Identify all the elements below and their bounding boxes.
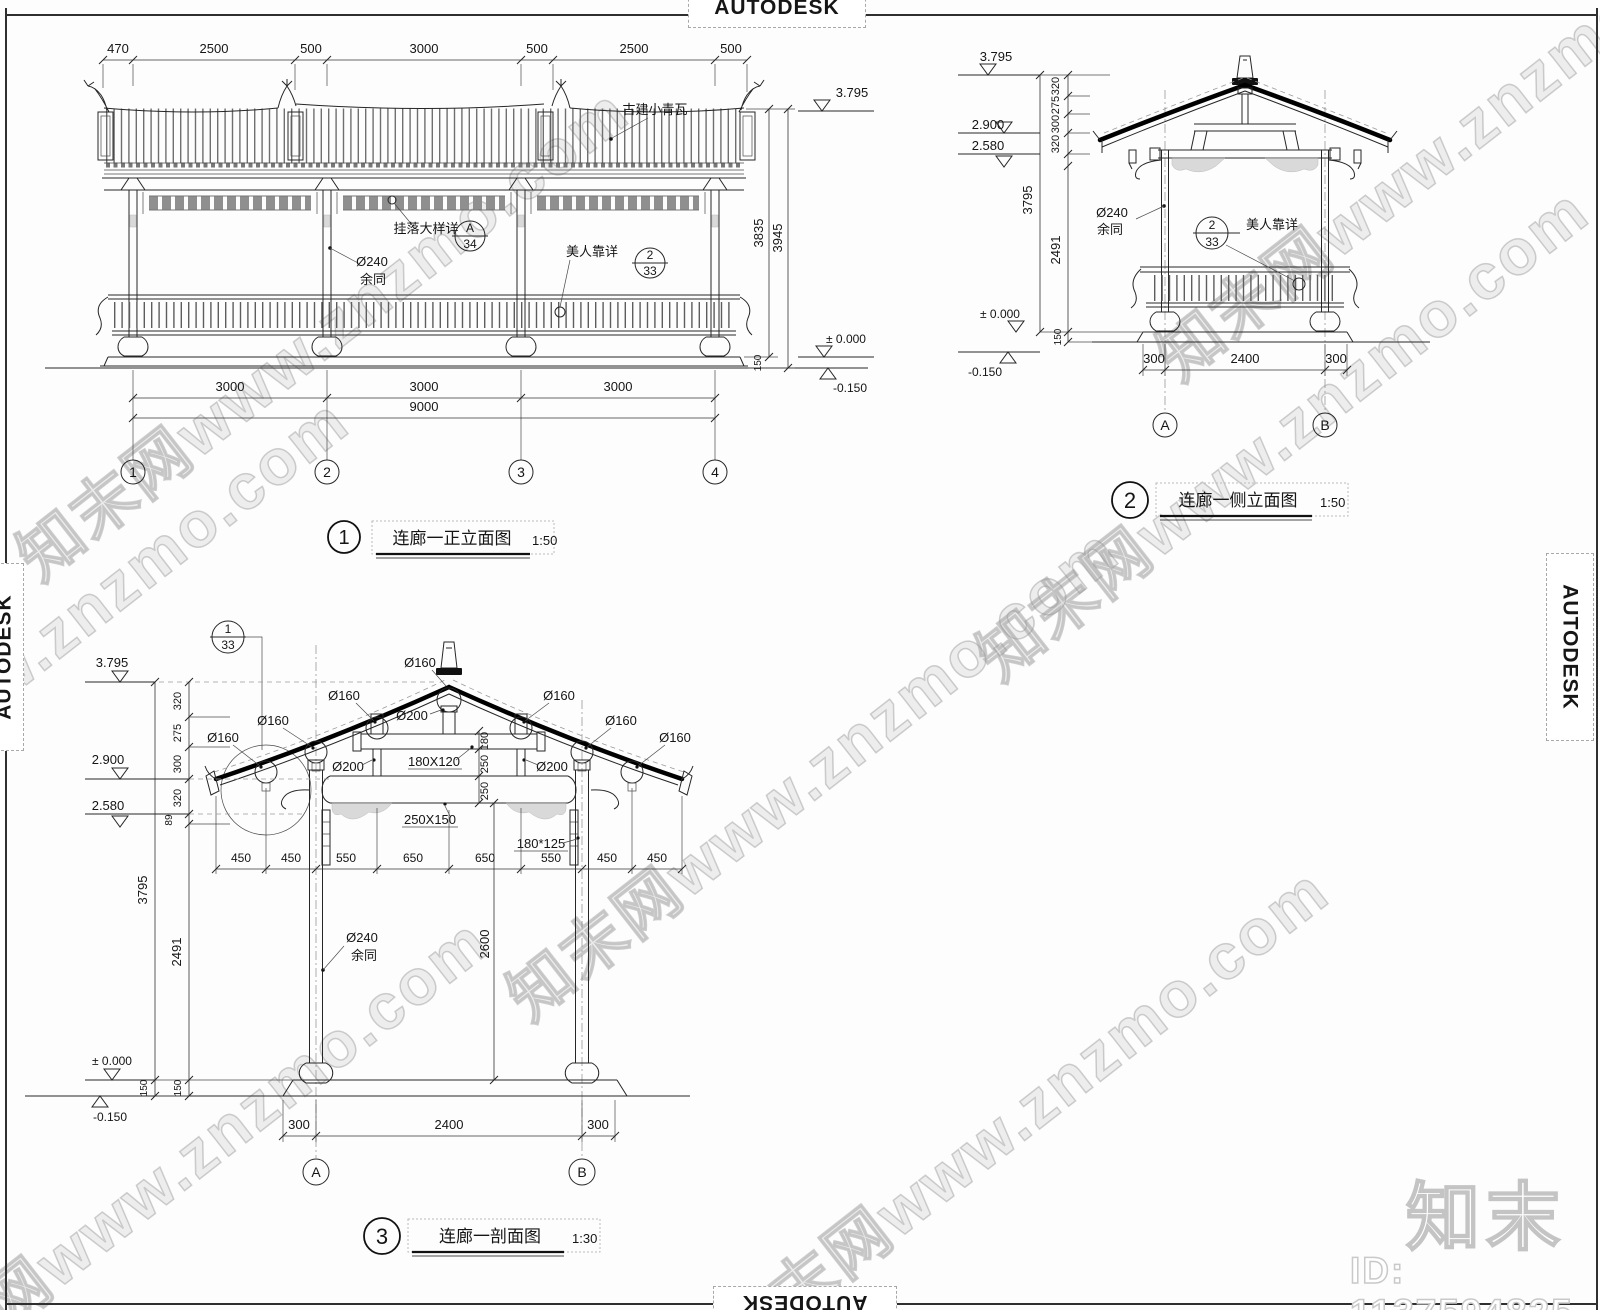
dim-text: 2500 <box>620 41 649 56</box>
dim-text: 2400 <box>1231 351 1260 366</box>
section-title: 3 连廊一剖面图 1:30 <box>364 1218 600 1256</box>
beam-lower-label: 250X150 <box>404 812 456 827</box>
autodesk-stamp-top: AUTODESK <box>688 0 866 28</box>
detail-ref-top: 2 <box>1209 218 1216 232</box>
elevation-text: -0.150 <box>93 1110 127 1124</box>
detail-ref-top: A <box>466 221 474 235</box>
dim-text: 300 <box>587 1117 609 1132</box>
post-label: Ø200 <box>332 759 364 774</box>
dim-text: 2400 <box>435 1117 464 1132</box>
dim-text: 3000 <box>410 41 439 56</box>
section-frame <box>281 706 618 865</box>
column-dia-label: Ø240 <box>356 254 388 269</box>
level-mark: 2.580 <box>958 138 1040 167</box>
front-columns <box>129 190 719 337</box>
dim-text: 450 <box>647 851 667 865</box>
dim-text: 3795 <box>135 876 150 905</box>
roof-end-panel <box>98 112 755 160</box>
side-bases-plinth <box>1092 312 1430 342</box>
dim-text: 250 <box>479 782 491 800</box>
side-elevation-view: 320 275 300 320 3795 2491 150 3.795 2.90… <box>958 49 1430 520</box>
dim-text: 3945 <box>770 224 785 253</box>
level-mark: 2.900 <box>958 117 1040 133</box>
detail-ref-bottom: 33 <box>643 264 657 278</box>
column-dia-label: Ø240 <box>346 930 378 945</box>
front-railing <box>96 295 752 335</box>
railing-label: 美人靠详 <box>566 244 618 259</box>
level-mark: -0.150 <box>92 1096 127 1124</box>
level-mark-minus: -0.150 <box>820 368 867 395</box>
autodesk-stamp-bottom: AUTODESK <box>713 1286 897 1310</box>
dim-text: 150 <box>1053 328 1064 345</box>
gualuo-label: 挂落大样详 <box>393 221 458 236</box>
dim-text: 2600 <box>477 930 492 959</box>
front-roof <box>84 79 764 178</box>
dim-text: 650 <box>403 851 423 865</box>
dim-text: 150 <box>753 354 764 371</box>
grid-bubble-label: 4 <box>711 464 719 480</box>
dim-text: 300 <box>172 755 184 773</box>
dim-text: 320 <box>1050 135 1062 153</box>
view-scale: 1:50 <box>532 533 557 548</box>
elevation-text: ± 0.000 <box>92 1054 132 1068</box>
dim-text: 450 <box>231 851 251 865</box>
znzmo-logo: 知末 <box>1406 1158 1566 1265</box>
view-title: 连廊一侧立面图 <box>1179 491 1298 510</box>
front-right-dims: 3835 3945 150 3.795 ± 0.000 -0.150 <box>744 85 874 395</box>
dim-text: 650 <box>475 851 495 865</box>
dim-text: 550 <box>541 851 561 865</box>
front-eave-beam <box>104 178 744 190</box>
sheet-border-right <box>1596 8 1598 1310</box>
dim-text: 300 <box>1325 351 1347 366</box>
dim-text: 300 <box>288 1117 310 1132</box>
dim-text: 3000 <box>410 379 439 394</box>
section-view: 1 33 <box>25 621 693 1256</box>
autodesk-stamp-label: AUTODESK <box>742 1290 867 1310</box>
view-title: 连廊一剖面图 <box>439 1227 541 1246</box>
elevation-text: ± 0.000 <box>980 307 1020 321</box>
image-id-text: ID: 1137594825 <box>1350 1250 1600 1310</box>
autodesk-stamp-left: AUTODESK <box>0 563 24 751</box>
post-label: Ø200 <box>396 708 428 723</box>
grid-bubble-label: A <box>1160 417 1170 433</box>
front-elevation-view: 470 2500 500 3000 500 2500 500 <box>45 41 874 558</box>
dim-text: 320 <box>172 692 184 710</box>
drawing-canvas: 470 2500 500 3000 500 2500 500 <box>0 0 1600 1310</box>
dim-text: 3000 <box>604 379 633 394</box>
side-bottom-dims: 300 2400 300 A B <box>1139 344 1351 437</box>
beam-upper-label: 180X120 <box>408 754 460 769</box>
column-dia-label: Ø240 <box>1096 205 1128 220</box>
railing-label: 美人靠详 <box>1246 217 1298 232</box>
dim-text: 89 <box>164 814 175 826</box>
view-title: 连廊一正立面图 <box>393 529 512 548</box>
grid-bubble-label: 2 <box>323 464 331 480</box>
section-width-dims: 450 450 550 650 650 550 450 450 <box>212 788 686 874</box>
elevation-text: -0.150 <box>968 365 1002 379</box>
dim-text: 3795 <box>1020 186 1035 215</box>
purlin-label: Ø160 <box>605 713 637 728</box>
roof-tile-label: 古建小青瓦 <box>622 102 687 117</box>
level-mark: ± 0.000 <box>85 1054 155 1080</box>
dim-text: 500 <box>300 41 322 56</box>
elevation-text: 2.900 <box>972 117 1005 132</box>
elevation-text: 2.580 <box>972 138 1005 153</box>
section-right-stacks: 180 250 250 2600 <box>475 727 498 1084</box>
dim-text: 2491 <box>169 938 184 967</box>
side-title: 2 连廊一侧立面图 1:50 <box>1112 482 1348 520</box>
side-roof <box>1093 56 1397 160</box>
front-bottom-dims: 3000 3000 3000 9000 1 2 3 4 <box>121 370 727 484</box>
dim-text: 300 <box>1143 351 1165 366</box>
dim-text: 9000 <box>410 399 439 414</box>
dim-text: 450 <box>281 851 301 865</box>
dim-text: 500 <box>720 41 742 56</box>
dim-text: 2491 <box>1048 236 1063 265</box>
view-number: 3 <box>376 1224 388 1249</box>
purlin-label: Ø160 <box>328 688 360 703</box>
elevation-text: 3.795 <box>96 655 129 670</box>
elevation-text: -0.150 <box>833 381 867 395</box>
grid-bubble-label: B <box>577 1164 586 1180</box>
front-title: 1 连廊一正立面图 1:50 <box>328 521 557 558</box>
cad-sheet: 知末网www.znzmo.com 知末网www.znzmo.com 知末网www… <box>0 0 1600 1310</box>
dim-text: 450 <box>597 851 617 865</box>
side-eave-brackets <box>1129 150 1361 179</box>
dim-text: 3835 <box>751 219 766 248</box>
front-bases-platform <box>45 337 868 368</box>
level-mark: 3.795 <box>958 49 1040 75</box>
dim-text: 550 <box>336 851 356 865</box>
level-mark-3795: 3.795 <box>798 85 874 111</box>
elevation-text: ± 0.000 <box>826 332 866 346</box>
autodesk-stamp-label: AUTODESK <box>0 594 17 719</box>
elevation-text: 3.795 <box>836 85 869 100</box>
elevation-text: 3.795 <box>980 49 1013 64</box>
detail-ref-top: 2 <box>647 248 654 262</box>
view-scale: 1:50 <box>1320 495 1345 510</box>
column-note-label: 余同 <box>351 948 377 963</box>
detail-ref-top: 1 <box>225 622 232 636</box>
dim-text: 320 <box>1050 77 1062 95</box>
dim-text: 300 <box>1050 115 1062 133</box>
front-top-dim-chain: 470 2500 500 3000 500 2500 500 <box>99 41 751 92</box>
elevation-text: 2.900 <box>92 752 125 767</box>
grid-bubble-label: 1 <box>129 464 137 480</box>
detail-ref-bottom: 34 <box>463 237 477 251</box>
view-scale: 1:30 <box>572 1231 597 1246</box>
dim-text: 180 <box>479 732 491 750</box>
column-note-label: 余同 <box>1097 222 1123 237</box>
autodesk-stamp-right: AUTODESK <box>1546 553 1594 741</box>
dim-text: 150 <box>173 1079 184 1096</box>
grid-bubble-label: 3 <box>517 464 525 480</box>
batten-label: 180*125 <box>517 836 565 851</box>
level-mark: 3.795 <box>85 655 155 682</box>
dim-text: 2500 <box>200 41 229 56</box>
detail-ref-bottom: 33 <box>1205 235 1219 249</box>
dim-text: 250 <box>479 755 491 773</box>
purlin-label: Ø160 <box>404 655 436 670</box>
purlin-label: Ø160 <box>207 730 239 745</box>
elevation-text: 2.580 <box>92 798 125 813</box>
dim-text: 150 <box>139 1079 150 1096</box>
dim-text: 500 <box>526 41 548 56</box>
level-mark-zero: ± 0.000 <box>798 332 874 357</box>
column-note-label: 余同 <box>360 272 386 287</box>
dim-text: 3000 <box>216 379 245 394</box>
front-lattice-frieze <box>143 192 705 214</box>
grid-bubble-label: B <box>1320 417 1329 433</box>
dim-text: 275 <box>1050 96 1062 114</box>
section-detail-bubble: 1 33 <box>210 621 311 835</box>
purlin-label: Ø160 <box>257 713 289 728</box>
view-number: 2 <box>1124 488 1136 513</box>
autodesk-stamp-label: AUTODESK <box>1558 584 1582 709</box>
dim-text: 275 <box>172 724 184 742</box>
level-mark: ± 0.000 <box>980 307 1024 332</box>
dim-text: 470 <box>107 41 129 56</box>
purlin-label: Ø160 <box>659 730 691 745</box>
detail-ref-bottom: 33 <box>221 638 235 652</box>
purlin-label: Ø160 <box>543 688 575 703</box>
view-number: 1 <box>338 527 349 549</box>
grid-bubble-label: A <box>311 1164 321 1180</box>
level-mark: -0.150 <box>958 352 1040 379</box>
dim-text: 320 <box>172 789 184 807</box>
section-bottom-dims: 300 2400 300 A B <box>279 1100 619 1185</box>
autodesk-stamp-label: AUTODESK <box>714 0 839 20</box>
post-label: Ø200 <box>536 759 568 774</box>
section-grid-lines <box>316 645 582 1158</box>
